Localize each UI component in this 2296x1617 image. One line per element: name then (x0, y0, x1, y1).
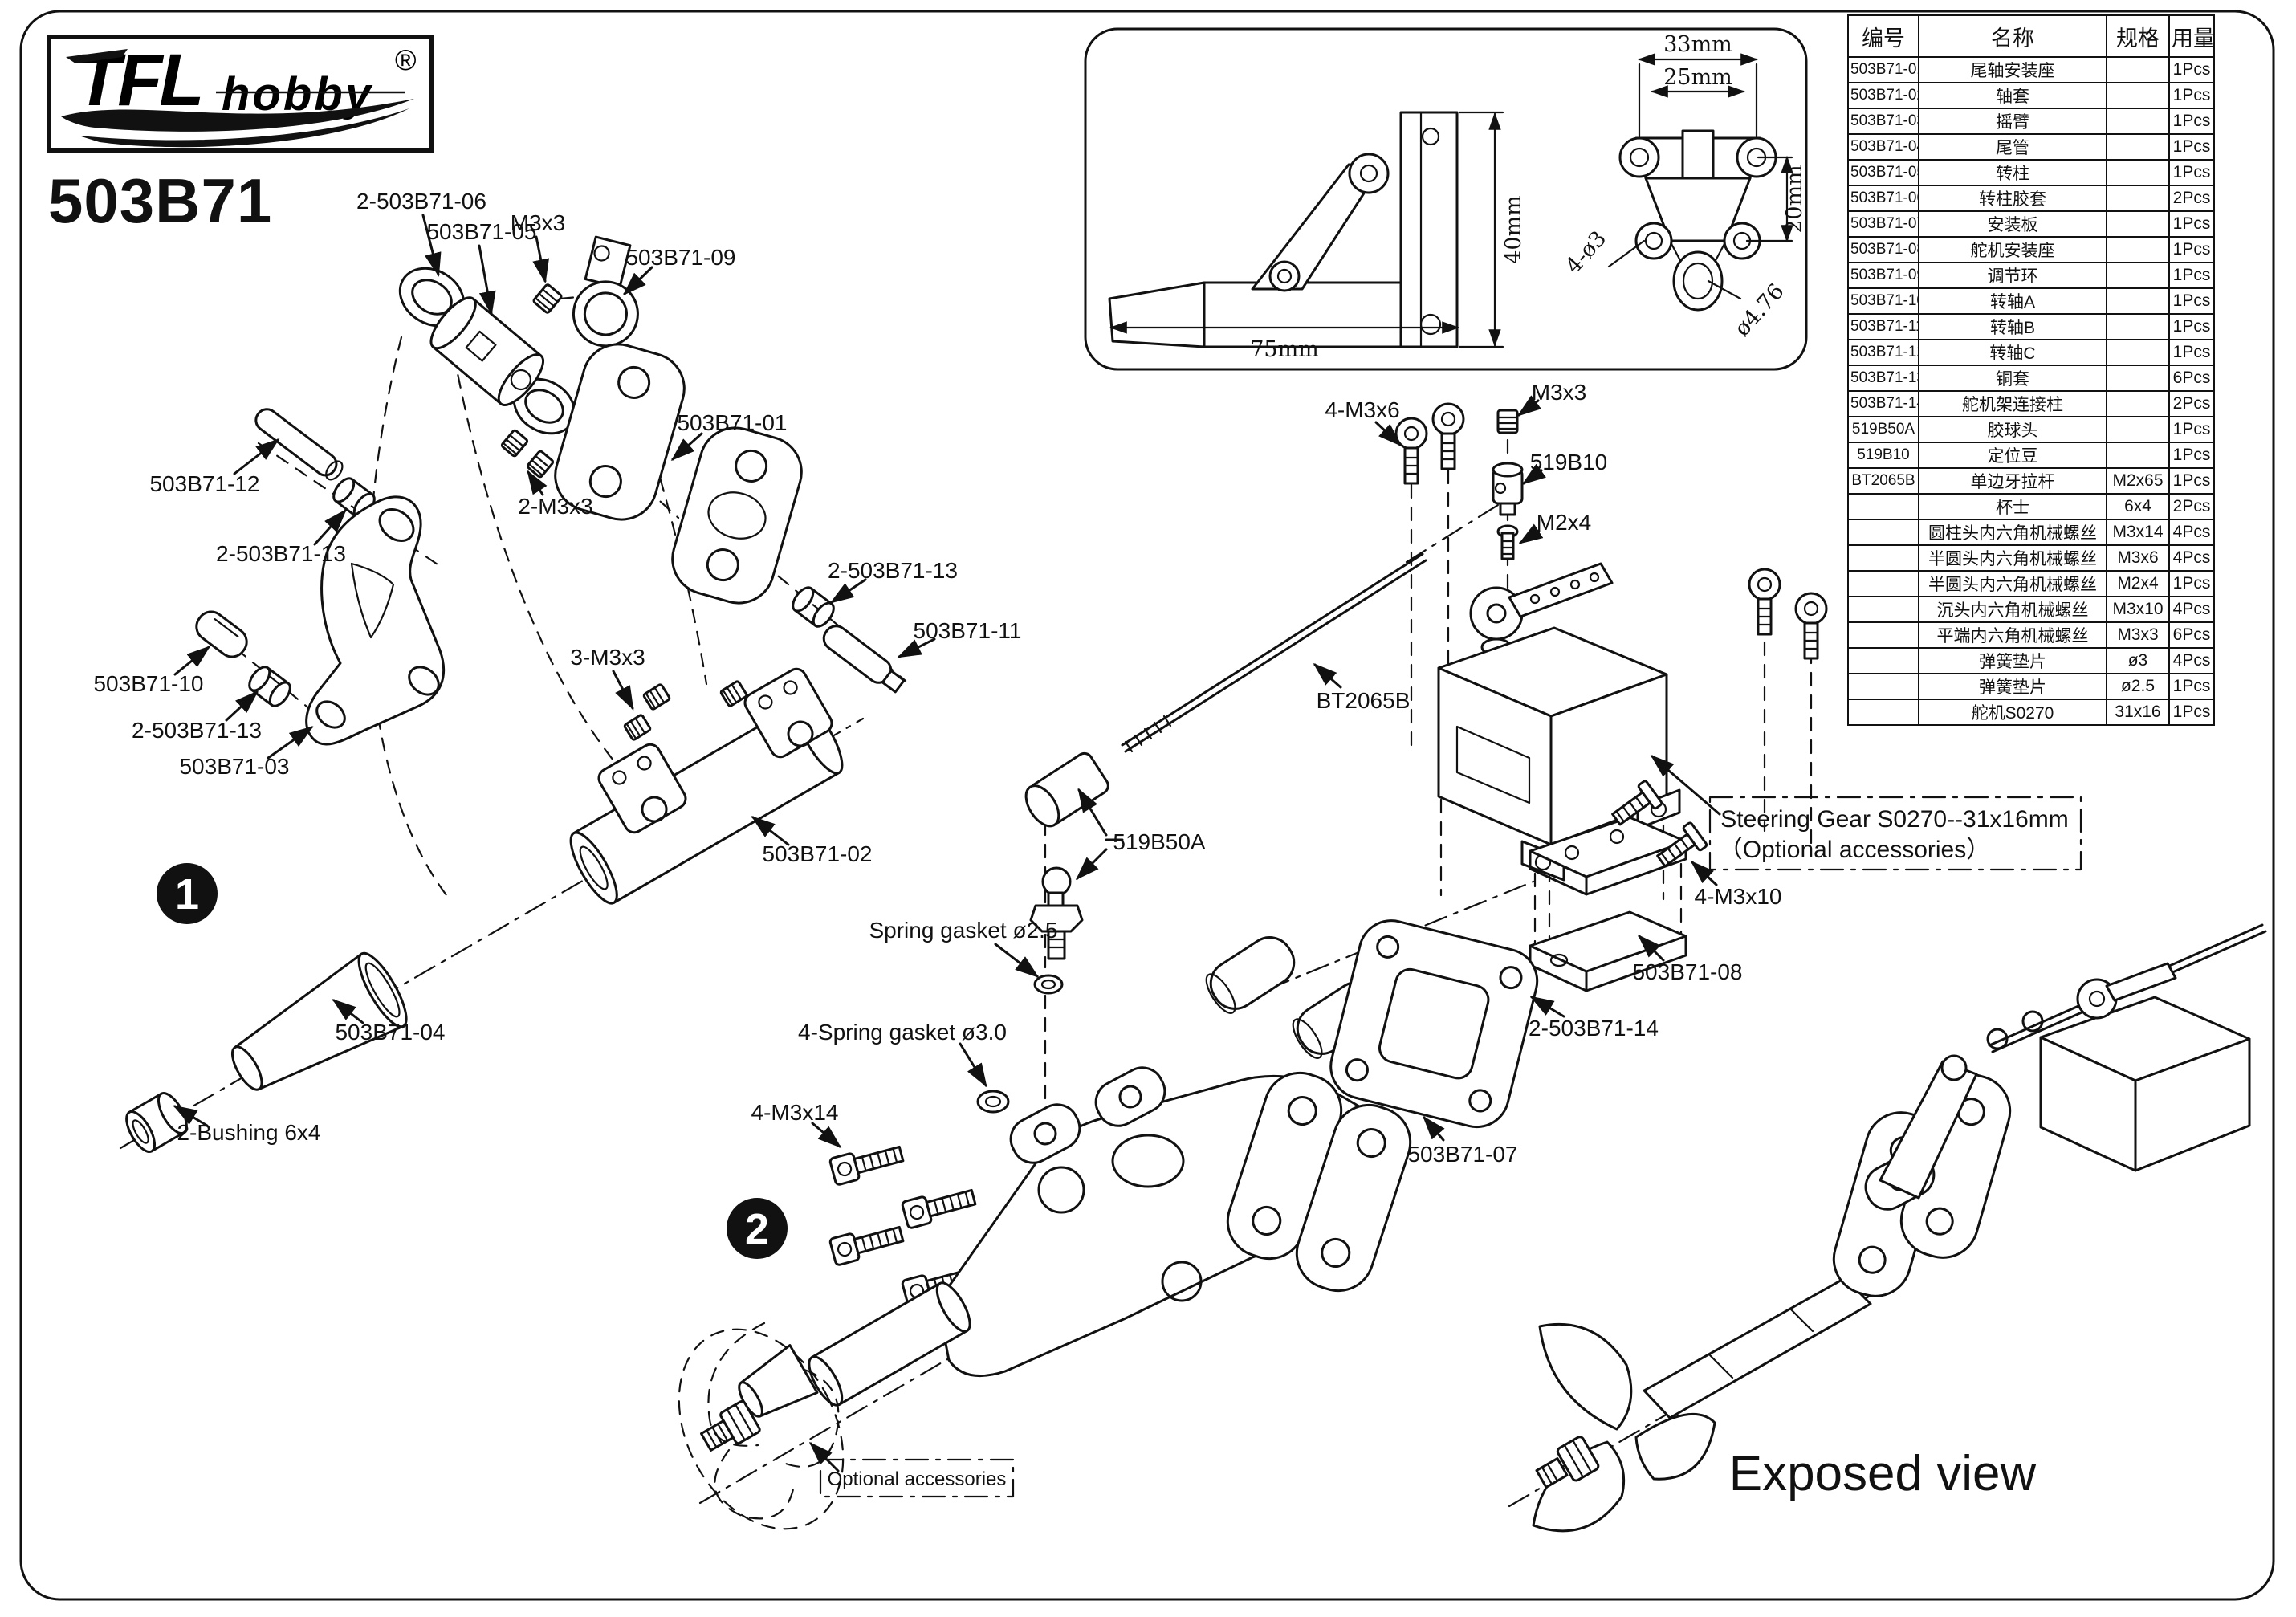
table-row: 503B71-12 转轴C 1Pcs (1848, 340, 2214, 365)
cell-part-qty: 1Pcs (2169, 160, 2214, 185)
cell-part-name: 转柱 (1919, 160, 2107, 185)
table-row: 503B71-14 舵机架连接柱 2Pcs (1848, 391, 2214, 417)
cell-part-name: 舵机安装座 (1919, 237, 2107, 263)
table-row: 503B71-11 转轴B 1Pcs (1848, 314, 2214, 340)
screws-m3x6 (1396, 404, 1826, 658)
table-row: 舵机S0270 31x16 1Pcs (1848, 699, 2214, 725)
table-row: 503B71-07 安装板 1Pcs (1848, 211, 2214, 237)
cell-part-spec (2107, 237, 2169, 263)
registered-mark: ® (395, 43, 417, 76)
cell-part-qty: 1Pcs (2169, 108, 2214, 134)
callout-503b71-02: 503B71-02 (762, 841, 872, 866)
callout-503b71-04: 503B71-04 (335, 1020, 445, 1045)
cell-part-qty: 1Pcs (2169, 417, 2214, 442)
cell-part-spec (2107, 442, 2169, 468)
cell-part-code: 503B71-13 (1848, 365, 1919, 391)
part-rocker-arm (307, 497, 444, 744)
cell-part-spec: 6x4 (2107, 494, 2169, 519)
callout-4-m3x10: 4-M3x10 (1695, 884, 1782, 909)
cell-part-spec (2107, 57, 2169, 83)
set-screw-3m3x3-a (624, 715, 651, 740)
cell-part-code: 503B71-08 (1848, 237, 1919, 263)
cell-part-name: 舵机架连接柱 (1919, 391, 2107, 417)
cell-part-code: 503B71-12 (1848, 340, 1919, 365)
cell-part-code: 503B71-02 (1848, 83, 1919, 108)
cell-part-qty: 2Pcs (2169, 494, 2214, 519)
callout-4-m3x6: 4-M3x6 (1325, 397, 1399, 422)
table-row: 503B71-06 转柱胶套 2Pcs (1848, 185, 2214, 211)
part-stop-collar-519b10 (1493, 463, 1522, 515)
cell-part-qty: 4Pcs (2169, 545, 2214, 571)
dim-4-o3: 4-ø3 (1561, 226, 1611, 279)
part-servo-post-a (1200, 929, 1302, 1019)
table-row: 平端内六角机械螺丝 M3x3 6Pcs (1848, 622, 2214, 648)
set-screw-3m3x3-b (643, 684, 670, 710)
set-screw-3m3x3-c (720, 681, 747, 707)
cell-part-code (1848, 571, 1919, 597)
cell-part-qty: 2Pcs (2169, 185, 2214, 211)
callout-2-503b71-06: 2-503B71-06 (356, 189, 486, 214)
screw-m2x4 (1498, 526, 1517, 559)
cell-part-spec (2107, 288, 2169, 314)
cell-part-spec: M3x3 (2107, 622, 2169, 648)
col-header-name: 名称 (1919, 15, 2107, 57)
parts-table: 编号 名称 规格 用量 503B71-01 尾轴安装座 1Pcs 503B71-… (1847, 14, 2215, 726)
step1-exploded-drawing: 1 (120, 236, 907, 1156)
table-row: 圆柱头内六角机械螺丝 M3x14 4Pcs (1848, 519, 2214, 545)
cell-part-spec (2107, 160, 2169, 185)
cell-part-name: 沉头内六角机械螺丝 (1919, 597, 2107, 622)
dim-o4-76: ø4.76 (1730, 279, 1789, 342)
part-mounting-plate (1324, 914, 1544, 1134)
brand-logo-art: TFL hobby ® (51, 39, 429, 148)
cell-part-qty: 1Pcs (2169, 314, 2214, 340)
cell-part-spec (2107, 211, 2169, 237)
product-code-title: 503B71 (48, 165, 272, 238)
cell-part-code (1848, 648, 1919, 674)
cell-part-spec: M3x14 (2107, 519, 2169, 545)
cell-part-name: 尾轴安装座 (1919, 57, 2107, 83)
callout-2-503b71-14: 2-503B71-14 (1529, 1016, 1659, 1041)
cell-part-spec: M2x65 (2107, 468, 2169, 494)
cell-part-qty: 1Pcs (2169, 57, 2214, 83)
cell-part-code: 519B10 (1848, 442, 1919, 468)
cell-part-qty: 1Pcs (2169, 288, 2214, 314)
dim-33mm: 33mm (1663, 32, 1732, 57)
table-row: 503B71-01 尾轴安装座 1Pcs (1848, 57, 2214, 83)
table-row: 503B71-09 调节环 1Pcs (1848, 263, 2214, 288)
dim-75mm: 75mm (1250, 337, 1319, 362)
set-screw-2m3x3-a (501, 430, 528, 457)
table-row: 杯士 6x4 2Pcs (1848, 494, 2214, 519)
cell-part-qty: 4Pcs (2169, 519, 2214, 545)
table-row: 弹簧垫片 ø2.5 1Pcs (1848, 674, 2214, 699)
inset-side-view: 75mm 40mm (1109, 112, 1526, 362)
dim-20mm: 20mm (1782, 165, 1807, 234)
table-row: 503B71-05 转柱 1Pcs (1848, 160, 2214, 185)
callout-503b71-08: 503B71-08 (1632, 959, 1742, 984)
table-row: 弹簧垫片 ø3 4Pcs (1848, 648, 2214, 674)
step2-number: 2 (745, 1205, 769, 1253)
cell-part-spec (2107, 365, 2169, 391)
cell-part-qty: 6Pcs (2169, 365, 2214, 391)
callout-503b71-03: 503B71-03 (179, 754, 289, 779)
cell-part-spec (2107, 340, 2169, 365)
cell-part-name: 平端内六角机械螺丝 (1919, 622, 2107, 648)
optional-accessories-note: Optional accessories (820, 1460, 1013, 1497)
callout-503b71-10: 503B71-10 (93, 671, 203, 696)
col-header-qty: 用量 (2169, 15, 2214, 57)
brand-main-text: TFL (75, 39, 202, 121)
table-header-row: 编号 名称 规格 用量 (1848, 15, 2214, 57)
table-row: 503B71-04 尾管 1Pcs (1848, 134, 2214, 160)
cell-part-spec (2107, 108, 2169, 134)
cell-part-code (1848, 597, 1919, 622)
callout-503b71-12: 503B71-12 (149, 471, 259, 496)
table-row: BT2065B 单边牙拉杆 M2x65 1Pcs (1848, 468, 2214, 494)
table-row: 503B71-03 摇臂 1Pcs (1848, 108, 2214, 134)
cell-part-code: 519B50A (1848, 417, 1919, 442)
steering-gear-note: Steering Gear S0270--31x16mm （Optional a… (1710, 797, 2081, 870)
set-screw-m3x3-servo (1498, 410, 1517, 433)
cell-part-qty: 1Pcs (2169, 468, 2214, 494)
cell-part-code: 503B71-04 (1848, 134, 1919, 160)
table-row: 沉头内六角机械螺丝 M3x10 4Pcs (1848, 597, 2214, 622)
cell-part-name: 弹簧垫片 (1919, 648, 2107, 674)
callout-bt2065b: BT2065B (1317, 688, 1411, 713)
callout-503b71-01: 503B71-01 (677, 410, 787, 435)
cell-part-qty: 4Pcs (2169, 648, 2214, 674)
callout-2-m3x3: 2-M3x3 (518, 494, 592, 519)
cell-part-spec (2107, 83, 2169, 108)
table-row: 503B71-13 铜套 6Pcs (1848, 365, 2214, 391)
cell-part-spec: ø3 (2107, 648, 2169, 674)
cell-part-code (1848, 674, 1919, 699)
step1-badge: 1 (157, 863, 218, 924)
cell-part-name: 安装板 (1919, 211, 2107, 237)
callout-spring-gasket-25: Spring gasket ø2.5 (869, 918, 1057, 943)
table-row: 半圆头内六角机械螺丝 M3x6 4Pcs (1848, 545, 2214, 571)
cell-part-name: 单边牙拉杆 (1919, 468, 2107, 494)
cell-part-code (1848, 699, 1919, 725)
cell-part-qty: 4Pcs (2169, 597, 2214, 622)
cell-part-name: 半圆头内六角机械螺丝 (1919, 545, 2107, 571)
cell-part-code: 503B71-05 (1848, 160, 1919, 185)
table-row: 519B10 定位豆 1Pcs (1848, 442, 2214, 468)
cell-part-spec (2107, 263, 2169, 288)
cell-part-qty: 1Pcs (2169, 83, 2214, 108)
callout-2-503b71-13-c: 2-503B71-13 (132, 718, 262, 743)
cell-part-qty: 1Pcs (2169, 134, 2214, 160)
cell-part-qty: 6Pcs (2169, 622, 2214, 648)
cell-part-name: 杯士 (1919, 494, 2107, 519)
cell-part-name: 胶球头 (1919, 417, 2107, 442)
cell-part-qty: 1Pcs (2169, 674, 2214, 699)
cell-part-code: 503B71-06 (1848, 185, 1919, 211)
part-shaft-b (820, 621, 907, 696)
inset-front-view: 33mm 25mm 20mm 4-ø3 ø4.76 (1561, 32, 1807, 341)
set-screw-2m3x3-b (527, 450, 554, 478)
part-shaft-c (252, 405, 346, 483)
cell-part-spec: M2x4 (2107, 571, 2169, 597)
col-header-code: 编号 (1848, 15, 1919, 57)
cell-part-qty: 2Pcs (2169, 391, 2214, 417)
cell-part-spec (2107, 185, 2169, 211)
cell-part-name: 调节环 (1919, 263, 2107, 288)
dim-40mm: 40mm (1501, 195, 1526, 264)
dimension-inset: 75mm 40mm 33mm 25mm (1085, 29, 1807, 369)
col-header-spec: 规格 (2107, 15, 2169, 57)
table-row: 519B50A 胶球头 1Pcs (1848, 417, 2214, 442)
cell-part-name: 圆柱头内六角机械螺丝 (1919, 519, 2107, 545)
cell-part-qty: 1Pcs (2169, 571, 2214, 597)
callout-4-m3x14: 4-M3x14 (751, 1100, 839, 1125)
callout-2-503b71-13-a: 2-503B71-13 (216, 541, 346, 566)
callout-m3x3-s1: M3x3 (511, 210, 565, 235)
cell-part-code (1848, 622, 1919, 648)
table-row: 503B71-02 轴套 1Pcs (1848, 83, 2214, 108)
cell-part-name: 摇臂 (1919, 108, 2107, 134)
cell-part-spec: M3x10 (2107, 597, 2169, 622)
cell-part-name: 铜套 (1919, 365, 2107, 391)
cell-part-qty: 1Pcs (2169, 211, 2214, 237)
part-pushrod (1122, 554, 1426, 751)
cell-part-qty: 1Pcs (2169, 263, 2214, 288)
cell-part-code (1848, 545, 1919, 571)
callout-2-bushing-6x4: 2-Bushing 6x4 (177, 1120, 320, 1145)
callout-503b71-09: 503B71-09 (625, 245, 735, 270)
table-row: 503B71-08 舵机安装座 1Pcs (1848, 237, 2214, 263)
cell-part-qty: 1Pcs (2169, 442, 2214, 468)
cell-part-name: 转轴A (1919, 288, 2107, 314)
cell-part-code: 503B71-10 (1848, 288, 1919, 314)
table-row: 503B71-10 转轴A 1Pcs (1848, 288, 2214, 314)
part-spring-washer-30 (978, 1091, 1008, 1112)
cell-part-spec (2107, 417, 2169, 442)
exposed-view-label: Exposed view (1729, 1446, 2037, 1501)
optional-accessories-label: Optional accessories (828, 1468, 1007, 1490)
cell-part-name: 转轴C (1919, 340, 2107, 365)
callout-3-m3x3: 3-M3x3 (570, 645, 645, 670)
cell-part-name: 尾管 (1919, 134, 2107, 160)
cell-part-code: 503B71-09 (1848, 263, 1919, 288)
callout-519b10: 519B10 (1530, 450, 1608, 475)
cell-part-name: 定位豆 (1919, 442, 2107, 468)
cell-part-code (1848, 519, 1919, 545)
step2-badge: 2 (727, 1198, 788, 1259)
cell-part-name: 轴套 (1919, 83, 2107, 108)
steering-gear-note-line2: （Optional accessories） (1719, 837, 1990, 863)
part-bushing-2 (246, 663, 294, 709)
cell-part-spec: 31x16 (2107, 699, 2169, 725)
dim-25mm: 25mm (1663, 65, 1732, 90)
cell-part-code (1848, 494, 1919, 519)
cell-part-qty: 1Pcs (2169, 699, 2214, 725)
page: 75mm 40mm 33mm 25mm (0, 0, 2296, 1617)
part-spring-washer-25 (1035, 975, 1062, 993)
step1-number: 1 (175, 870, 199, 918)
cell-part-code: 503B71-11 (1848, 314, 1919, 340)
cell-part-spec: ø2.5 (2107, 674, 2169, 699)
brand-logo: TFL hobby ® (47, 35, 434, 153)
callout-2-503b71-13-b: 2-503B71-13 (828, 558, 958, 583)
cell-part-code: 503B71-07 (1848, 211, 1919, 237)
cell-part-name: 转柱胶套 (1919, 185, 2107, 211)
cell-part-code: 503B71-14 (1848, 391, 1919, 417)
cell-part-spec (2107, 391, 2169, 417)
cell-part-qty: 1Pcs (2169, 237, 2214, 263)
cell-part-qty: 1Pcs (2169, 340, 2214, 365)
cell-part-code: BT2065B (1848, 468, 1919, 494)
cell-part-name: 弹簧垫片 (1919, 674, 2107, 699)
cell-part-spec (2107, 134, 2169, 160)
set-screw-m3x3 (533, 284, 562, 314)
table-row: 半圆头内六角机械螺丝 M2x4 1Pcs (1848, 571, 2214, 597)
cell-part-name: 转轴B (1919, 314, 2107, 340)
callout-spring-gasket-30: 4-Spring gasket ø3.0 (798, 1020, 1007, 1045)
callout-m2x4: M2x4 (1537, 510, 1591, 535)
callout-503b71-07: 503B71-07 (1407, 1142, 1517, 1167)
cell-part-code: 503B71-03 (1848, 108, 1919, 134)
cell-part-name: 半圆头内六角机械螺丝 (1919, 571, 2107, 597)
callout-503b71-11: 503B71-11 (914, 618, 1022, 643)
cell-part-name: 舵机S0270 (1919, 699, 2107, 725)
callout-519b50a: 519B50A (1113, 829, 1206, 854)
cell-part-code: 503B71-01 (1848, 57, 1919, 83)
cell-part-spec (2107, 314, 2169, 340)
steering-gear-note-line1: Steering Gear S0270--31x16mm (1720, 806, 2069, 833)
cell-part-spec: M3x6 (2107, 545, 2169, 571)
callout-m3x3-s2: M3x3 (1532, 380, 1586, 405)
